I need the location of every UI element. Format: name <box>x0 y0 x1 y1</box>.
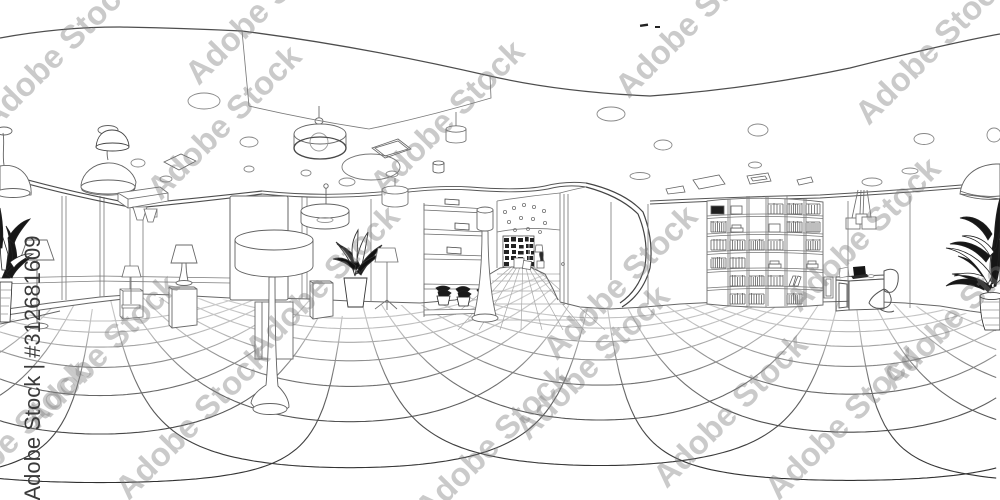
svg-text:Adobe Stock | #312681609: Adobe Stock | #312681609 <box>20 235 45 500</box>
